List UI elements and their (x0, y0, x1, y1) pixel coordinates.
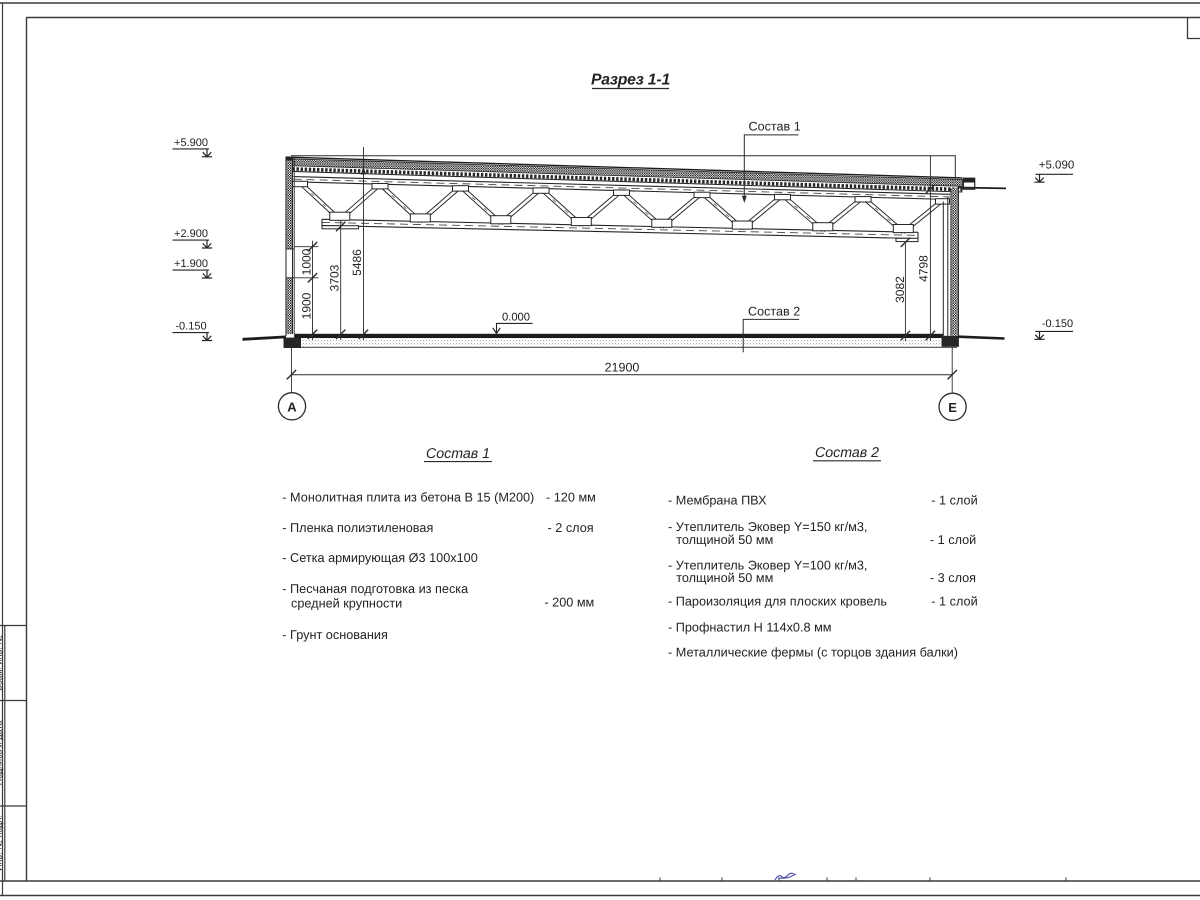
svg-text:толщиной 50 мм: толщиной 50 мм (676, 571, 773, 585)
svg-text:Инв. № подл.: Инв. № подл. (0, 815, 4, 871)
svg-text:- 200 мм: - 200 мм (544, 596, 594, 610)
svg-text:-0.150: -0.150 (1042, 318, 1073, 330)
svg-text:Состав 2: Состав 2 (815, 445, 879, 461)
svg-text:21900: 21900 (605, 361, 640, 375)
svg-text:Е: Е (948, 400, 957, 415)
svg-text:3082: 3082 (893, 276, 907, 303)
svg-text:4798: 4798 (917, 255, 931, 282)
svg-text:- 2 слоя: - 2 слоя (548, 521, 594, 535)
svg-text:- 3 слоя: - 3 слоя (930, 571, 976, 585)
svg-text:+2.900: +2.900 (174, 228, 208, 240)
svg-text:- Пленка полиэтиленовая: - Пленка полиэтиленовая (282, 521, 433, 535)
svg-text:Состав 1: Состав 1 (426, 446, 490, 462)
svg-text:+5.090: +5.090 (1039, 160, 1075, 172)
svg-text:0.000: 0.000 (502, 312, 530, 324)
svg-text:толщиной 50 мм: толщиной 50 мм (676, 533, 773, 547)
svg-text:- 1 слой: - 1 слой (930, 533, 976, 547)
svg-text:5486: 5486 (350, 249, 364, 276)
svg-text:Состав 2: Состав 2 (748, 304, 800, 318)
svg-text:- Песчаная подготовка из песка: - Песчаная подготовка из песка (282, 582, 469, 596)
svg-text:- 1 слой: - 1 слой (931, 595, 977, 609)
svg-text:Разрез 1-1: Разрез 1-1 (591, 72, 670, 89)
svg-text:1000: 1000 (300, 248, 314, 275)
svg-text:- Металлические фермы (с торцо: - Металлические фермы (с торцов здания б… (668, 646, 958, 660)
svg-text:Подпись и дата: Подпись и дата (0, 721, 4, 786)
svg-text:средней крупности: средней крупности (291, 597, 402, 611)
svg-text:- Грунт основания: - Грунт основания (282, 628, 388, 642)
svg-text:Состав 1: Состав 1 (749, 120, 801, 134)
svg-text:- 1 слой: - 1 слой (931, 494, 977, 508)
svg-text:+5.900: +5.900 (174, 137, 208, 149)
svg-text:- Монолитная плита из бетона В: - Монолитная плита из бетона В 15 (М200) (282, 491, 534, 505)
svg-text:А: А (287, 400, 297, 415)
svg-text:- Профнастил Н 114х0.8 мм: - Профнастил Н 114х0.8 мм (668, 621, 832, 635)
svg-text:- Сетка армирующая Ø3 100х100: - Сетка армирующая Ø3 100х100 (282, 551, 478, 565)
svg-text:1900: 1900 (300, 292, 314, 319)
svg-text:- Мембрана ПВХ: - Мембрана ПВХ (668, 494, 767, 508)
svg-text:3703: 3703 (328, 264, 342, 291)
svg-text:+1.900: +1.900 (174, 258, 208, 270)
svg-text:- 120 мм: - 120 мм (546, 491, 596, 505)
svg-text:-0.150: -0.150 (175, 321, 206, 333)
svg-text:- Пароизоляция для плоских кро: - Пароизоляция для плоских кровель (668, 595, 887, 609)
svg-text:Взам. инв. №: Взам. инв. № (0, 635, 4, 691)
